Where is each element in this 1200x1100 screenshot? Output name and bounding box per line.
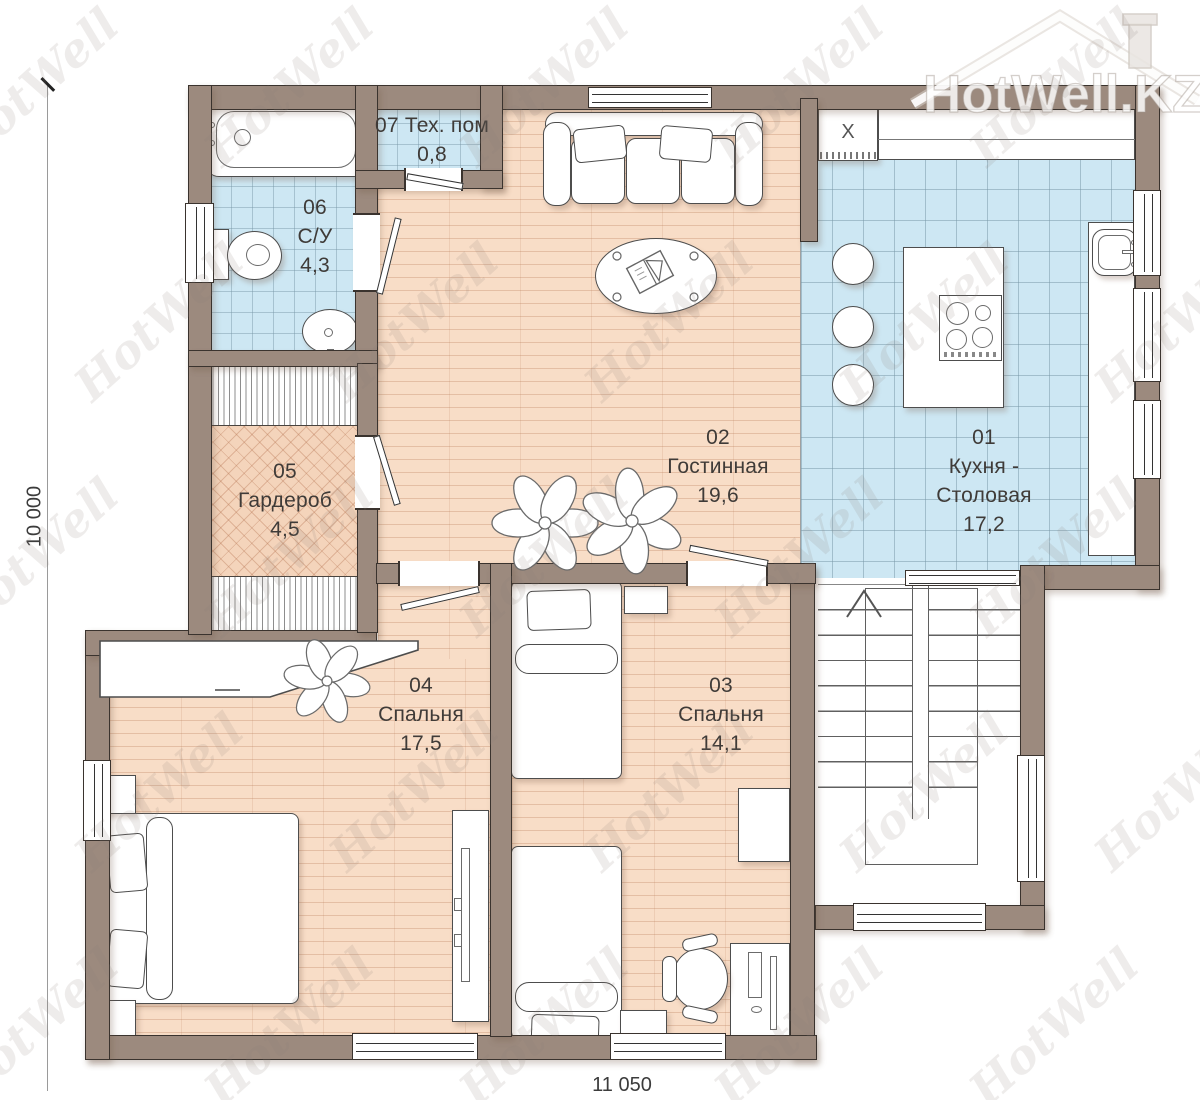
room-area: 14,1 [636, 730, 806, 759]
room-number: 04 [336, 672, 506, 701]
room-name: Кухня - Столовая [899, 453, 1069, 511]
room-area: 4,3 [250, 252, 380, 281]
room-label-03: 03 Спальня 14,1 [636, 672, 806, 759]
window [1133, 190, 1161, 276]
stove-burner [975, 305, 991, 321]
room-area: 19,6 [633, 482, 803, 511]
desk-mouse [751, 1006, 762, 1013]
bed-blanket-fold [146, 817, 173, 1000]
wall-kitchen-bottom [1043, 565, 1160, 590]
window [352, 1033, 478, 1060]
stove-burner [946, 329, 967, 350]
bar-stool [832, 243, 874, 285]
stairs-well-outline [865, 588, 978, 865]
sofa-pillow [572, 124, 627, 163]
window [610, 1033, 726, 1060]
watermark-text: HotWell [0, 0, 129, 176]
watermark-text: HotWell [0, 468, 129, 647]
wall-bedroom04-top [85, 630, 377, 656]
bed-blanket-fold [515, 982, 618, 1012]
wall-bedroom03-left [490, 563, 512, 1037]
stairs-top-edge [818, 584, 906, 585]
watermark-text: HotWell [1084, 703, 1200, 882]
dresser [738, 788, 790, 862]
tv-bracket [454, 898, 462, 911]
desk-monitor [770, 956, 777, 1030]
dimension-label-vertical: 10 000 [24, 462, 47, 572]
room-name: Спальня [636, 701, 806, 730]
room-label-07: 07 Тех. пом 0,8 [372, 112, 492, 170]
desk-keyboard [748, 952, 762, 998]
bar-stool [832, 306, 874, 348]
room-area: 17,2 [899, 511, 1069, 540]
watermark-text: HotWell [959, 938, 1149, 1100]
fridge-mark: X [841, 121, 854, 144]
tv-console [452, 810, 489, 1022]
office-chair-back [662, 956, 677, 1002]
bed-pillow [526, 589, 591, 631]
room-area: 4,5 [215, 516, 355, 545]
room-number: 05 [215, 458, 355, 487]
room-area: 17,5 [336, 730, 506, 759]
bed-pillow [106, 928, 149, 989]
room-label-04: 04 Спальня 17,5 [336, 672, 506, 759]
bathroom-sink-drain [324, 328, 333, 337]
floor-plan-canvas: X [0, 0, 1200, 1100]
window [588, 87, 712, 108]
window [185, 203, 214, 283]
window [83, 760, 111, 841]
dimension-tick [41, 77, 55, 91]
room-number-name: 07 Тех. пом [372, 112, 492, 141]
kitchen-counter-edge [878, 139, 1135, 140]
wall-bedroom03-right [790, 565, 815, 1060]
window [1133, 288, 1161, 382]
dimension-label-horizontal: 11 050 [542, 1074, 702, 1097]
logo-chimney [1129, 24, 1151, 68]
wall-bathroom-bottom [188, 350, 378, 367]
room-number: 02 [633, 424, 803, 453]
wardrobe-shelf-top [206, 366, 362, 426]
fridge-vent-strip [820, 152, 877, 159]
wardrobe-shelf-bottom [206, 576, 362, 636]
dimension-line-vertical [47, 86, 48, 1091]
room-area: 0,8 [372, 141, 492, 170]
room-name: Спальня [336, 701, 506, 730]
stove-controls [944, 352, 997, 357]
room-label-06: 06 С/У 4,3 [250, 194, 380, 281]
room-name: С/У [250, 223, 380, 252]
office-chair-seat [672, 948, 728, 1010]
kitchen-counter-top [878, 104, 1135, 160]
sofa-armrest [543, 122, 571, 206]
wall-outer-left-lower [85, 630, 110, 1060]
stair-railing [905, 570, 1020, 586]
room-label-05: 05 Гардероб 4,5 [215, 458, 355, 545]
room-name: Гардероб [215, 487, 355, 516]
tv-panel [461, 848, 470, 982]
room-number: 06 [250, 194, 380, 223]
room-number: 03 [636, 672, 806, 701]
stove-burner [946, 302, 969, 325]
window [1133, 400, 1161, 479]
sofa-armrest [735, 122, 763, 206]
floor-bedroom-04-entry [378, 583, 492, 659]
room-number: 01 [899, 424, 1069, 453]
room-label-01: 01 Кухня - Столовая 17,2 [899, 424, 1069, 540]
bed-pillow [106, 832, 149, 893]
coffee-table [595, 238, 717, 314]
sofa-pillow [659, 125, 714, 163]
window [1017, 755, 1045, 882]
bathtub-drain [234, 129, 251, 146]
window [853, 903, 986, 931]
stove-burner [972, 327, 993, 348]
room-name: Гостинная [633, 453, 803, 482]
door-opening-bedroom04 [398, 561, 480, 586]
room-label-02: 02 Гостинная 19,6 [633, 424, 803, 511]
wall-kitchen-living [800, 98, 818, 242]
bar-stool [832, 364, 874, 406]
bed-blanket-fold [515, 644, 618, 674]
tv-bracket [454, 934, 462, 947]
nightstand [624, 586, 668, 614]
